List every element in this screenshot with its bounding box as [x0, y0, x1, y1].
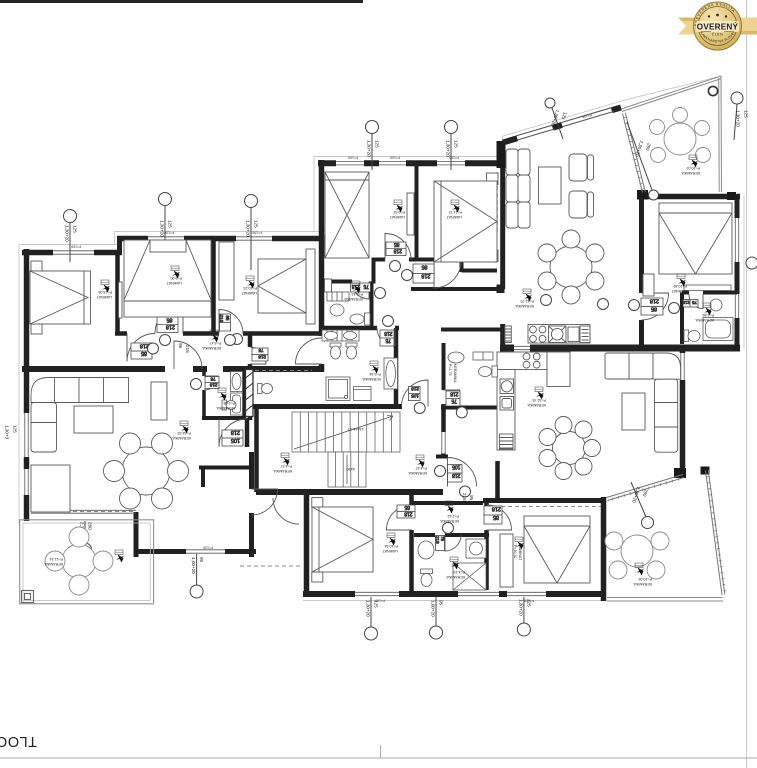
svg-text:85: 85 — [404, 504, 410, 510]
svg-text:1,30+20: 1,30+20 — [160, 220, 165, 237]
svg-text:13x16,57: 13x16,57 — [347, 427, 364, 432]
svg-text:1,30+20: 1,30+20 — [736, 110, 741, 127]
svg-text:280: 280 — [88, 522, 93, 530]
svg-text:P=9,53: P=9,53 — [394, 210, 406, 214]
svg-text:95: 95 — [199, 557, 204, 563]
svg-text:OVERENÝ: OVERENÝ — [697, 21, 739, 32]
svg-text:KERAMIKA: KERAMIKA — [453, 364, 457, 383]
svg-text:P=10,02: P=10,02 — [687, 166, 701, 170]
svg-text:218: 218 — [404, 511, 413, 517]
svg-text:KERAMIKA: KERAMIKA — [344, 297, 363, 301]
svg-text:P=13,08: P=13,08 — [99, 290, 113, 294]
svg-text:218: 218 — [231, 429, 240, 435]
svg-text:1,30+3: 1,30+3 — [5, 425, 10, 440]
svg-text:75: 75 — [210, 377, 216, 382]
svg-text:P=2,86: P=2,86 — [703, 313, 715, 317]
svg-text:218: 218 — [209, 383, 217, 388]
svg-text:218: 218 — [650, 298, 659, 304]
svg-text:P=10,23: P=10,23 — [244, 286, 258, 290]
svg-text:105: 105 — [231, 437, 240, 443]
svg-text:1,30+20: 1,30+20 — [246, 220, 251, 237]
svg-text:F=100: F=100 — [164, 231, 174, 235]
svg-text:1,30+20: 1,30+20 — [65, 225, 70, 242]
svg-text:KERAMIKA: KERAMIKA — [695, 318, 714, 322]
svg-text:KERAMIKA: KERAMIKA — [362, 377, 381, 381]
svg-text:95: 95 — [178, 343, 183, 349]
svg-text:85: 85 — [394, 241, 400, 247]
svg-text:218: 218 — [185, 345, 190, 353]
svg-text:KERAMIKA: KERAMIKA — [446, 575, 465, 579]
svg-text:LAMINAT: LAMINAT — [389, 215, 405, 219]
svg-text:218: 218 — [258, 355, 266, 360]
svg-text:P=2,08: P=2,08 — [224, 401, 236, 405]
svg-text:KERAMIKA: KERAMIKA — [273, 469, 292, 473]
svg-text:85: 85 — [225, 316, 230, 322]
svg-text:P=3,47: P=3,47 — [210, 341, 222, 345]
svg-text:218: 218 — [411, 387, 419, 392]
svg-text:75: 75 — [258, 348, 264, 353]
svg-text:KERAMIKA: KERAMIKA — [440, 519, 459, 523]
svg-text:75: 75 — [385, 337, 391, 343]
svg-text:KERAMIKA: KERAMIKA — [633, 582, 652, 586]
svg-text:125: 125 — [454, 140, 459, 148]
svg-text:1,30+20: 1,30+20 — [518, 599, 523, 616]
svg-text:P=9,00: P=9,00 — [171, 276, 183, 280]
svg-text:P=10,86: P=10,86 — [674, 284, 688, 288]
svg-text:218: 218 — [452, 472, 461, 478]
svg-text:4x30: 4x30 — [346, 467, 355, 472]
svg-text:1,00+20: 1,00+20 — [191, 557, 196, 574]
svg-text:P=2,43: P=2,43 — [352, 292, 364, 296]
svg-text:LAMINAT: LAMINAT — [382, 549, 398, 553]
svg-text:KERAMIKA: KERAMIKA — [172, 436, 191, 440]
svg-text:P=2,42: P=2,42 — [448, 514, 460, 518]
svg-text:P=11,24: P=11,24 — [50, 557, 63, 561]
svg-text:F=100: F=100 — [252, 231, 262, 235]
svg-text:95: 95 — [469, 495, 474, 501]
svg-text:P=11,72: P=11,72 — [449, 210, 462, 214]
svg-text:105: 105 — [411, 394, 419, 399]
svg-text:218: 218 — [384, 330, 393, 336]
svg-text:85: 85 — [651, 306, 657, 312]
svg-text:KERAMIKA: KERAMIKA — [202, 346, 221, 350]
svg-text:218: 218 — [462, 493, 467, 501]
svg-text:KERAMIKA: KERAMIKA — [527, 403, 546, 407]
svg-text:218: 218 — [219, 315, 224, 323]
svg-text:1,30+20: 1,30+20 — [366, 600, 371, 617]
svg-text:125: 125 — [168, 220, 173, 228]
svg-text:95: 95 — [439, 600, 444, 606]
svg-text:105: 105 — [452, 464, 461, 470]
svg-text:F=100: F=100 — [71, 245, 81, 249]
svg-text:1,30+20: 1,30+20 — [446, 140, 451, 157]
svg-text:P=34,53: P=34,53 — [178, 431, 192, 435]
svg-text:218: 218 — [393, 247, 402, 253]
svg-text:P=4,15: P=4,15 — [454, 570, 466, 574]
svg-text:F=100: F=100 — [524, 599, 534, 603]
svg-text:85: 85 — [421, 264, 427, 270]
svg-text:F=100: F=100 — [348, 156, 358, 160]
svg-text:P=32,78: P=32,78 — [533, 398, 547, 402]
svg-text:218: 218 — [450, 391, 459, 397]
svg-text:218: 218 — [166, 323, 175, 329]
svg-text:KERAMIKA: KERAMIKA — [44, 562, 63, 566]
svg-text:75: 75 — [692, 300, 697, 305]
svg-text:P=2,75: P=2,75 — [448, 364, 452, 376]
svg-text:LAMINAT: LAMINAT — [446, 215, 462, 219]
svg-text:125: 125 — [254, 220, 259, 228]
svg-text:KERAMIKA: KERAMIKA — [408, 471, 427, 475]
svg-text:LAMINAT: LAMINAT — [241, 291, 257, 295]
svg-text:85: 85 — [141, 350, 147, 356]
svg-text:ČLEN: ČLEN — [712, 32, 723, 37]
svg-text:LAMINAT: LAMINAT — [166, 281, 182, 285]
svg-text:218: 218 — [492, 506, 501, 512]
svg-text:KERAMIKA: KERAMIKA — [515, 304, 534, 308]
svg-text:TLOC: TLOC — [0, 733, 37, 749]
svg-text:125: 125 — [13, 425, 18, 433]
svg-text:75: 75 — [451, 398, 457, 404]
svg-text:KERAMIKA: KERAMIKA — [681, 171, 700, 175]
svg-text:75: 75 — [363, 283, 369, 289]
svg-text:125: 125 — [375, 140, 380, 148]
svg-text:P=10,32: P=10,32 — [513, 545, 517, 559]
svg-text:LAMINAT: LAMINAT — [96, 295, 112, 299]
svg-text:F=100: F=100 — [375, 599, 385, 603]
svg-text:218: 218 — [435, 536, 440, 544]
svg-text:P=5,34: P=5,34 — [370, 372, 382, 376]
svg-text:125: 125 — [73, 225, 78, 233]
svg-text:218: 218 — [682, 300, 690, 305]
svg-text:F=100: F=100 — [449, 156, 459, 160]
svg-text:LAMINAT: LAMINAT — [671, 289, 687, 293]
svg-text:P=4,57: P=4,57 — [281, 464, 293, 468]
svg-text:P=4,57: P=4,57 — [416, 466, 428, 470]
svg-text:P=10,34: P=10,34 — [385, 544, 399, 548]
svg-text:1,00+20: 1,00+20 — [431, 600, 436, 617]
svg-text:1,30+20: 1,30+20 — [367, 140, 372, 157]
svg-text:F=130: F=130 — [203, 546, 213, 550]
svg-text:P=41,70: P=41,70 — [521, 299, 535, 303]
svg-text:F=100: F=100 — [390, 156, 400, 160]
svg-text:85: 85 — [493, 514, 499, 520]
svg-text:P=10,06: P=10,06 — [639, 577, 653, 581]
svg-text:KERAMIKA: KERAMIKA — [216, 406, 235, 410]
svg-text:218: 218 — [421, 273, 430, 279]
svg-text:125: 125 — [744, 110, 749, 118]
svg-text:LAMINAT: LAMINAT — [518, 545, 522, 561]
